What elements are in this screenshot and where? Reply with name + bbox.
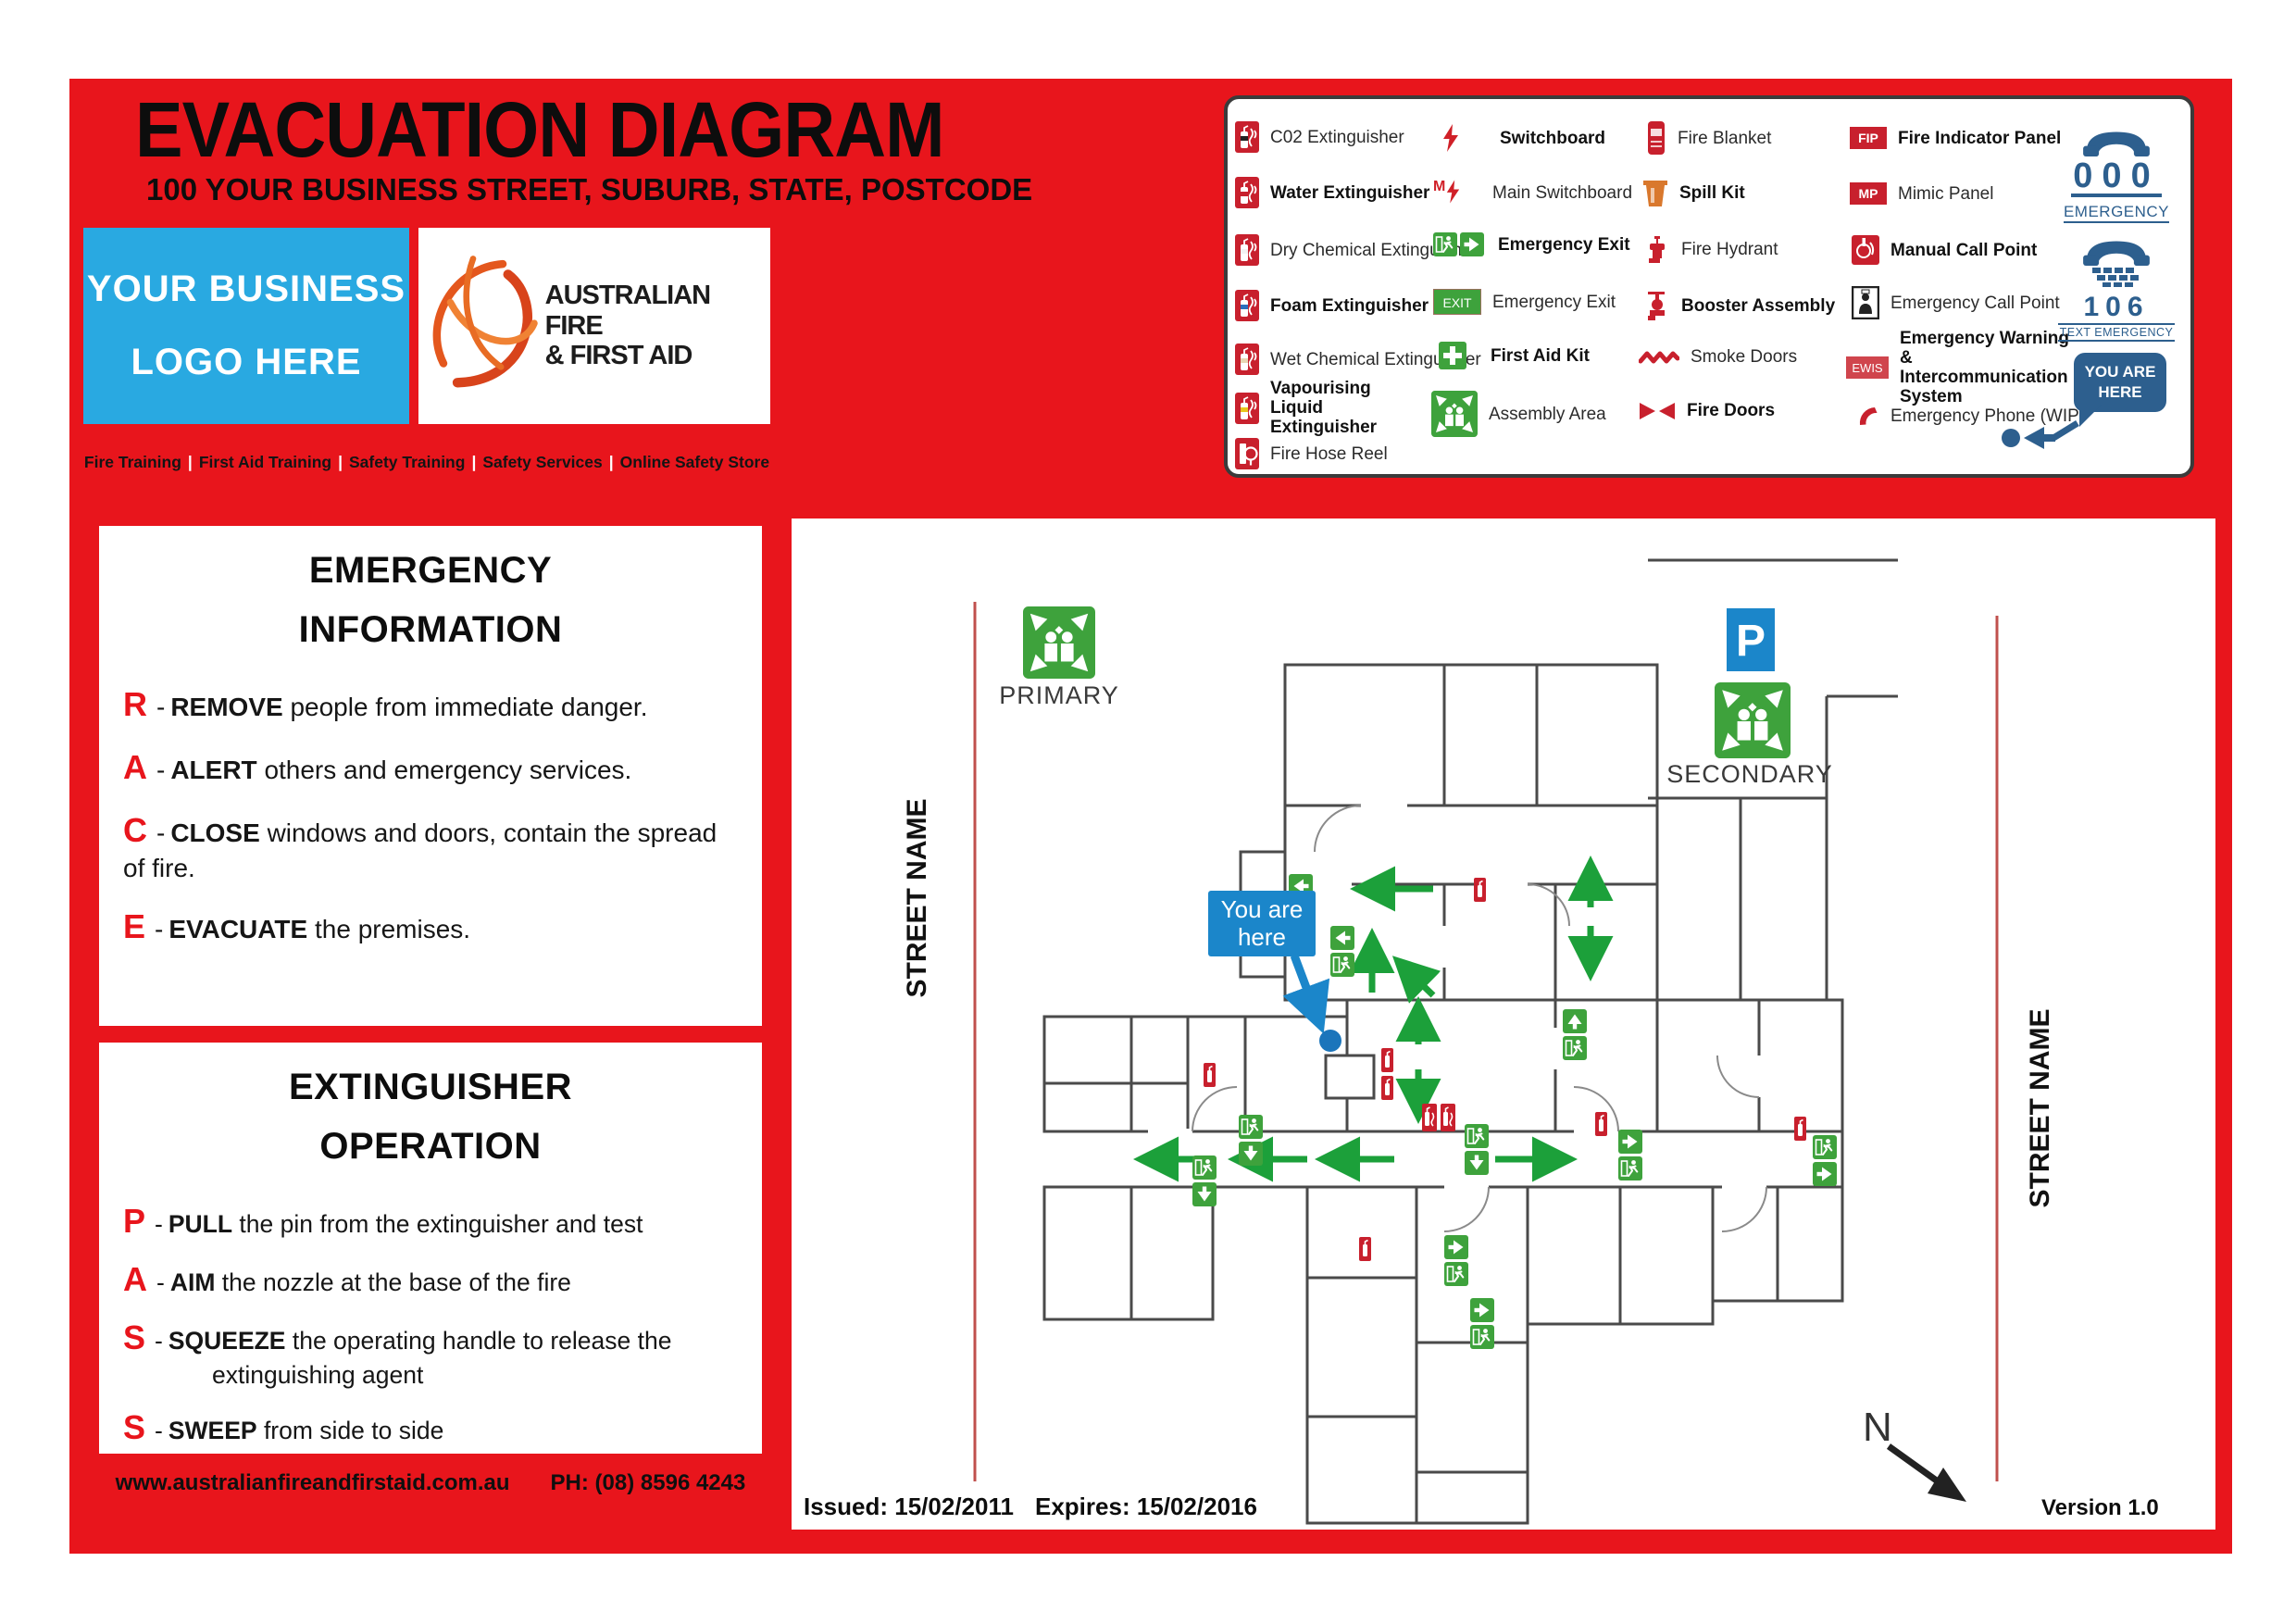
svg-text:P: P [1736,617,1766,666]
emergency-number-label: EMERGENCY [2064,203,2169,223]
race-item-evacuate: E-EVACUATE the premises. [123,906,736,949]
emergency-information-title: EMERGENCY INFORMATION [99,541,762,659]
logo-line2: LOGO HERE [131,342,361,383]
legend-item: Water Extinguisher [1235,177,1429,208]
extinguisher-operation-title: EXTINGUISHER OPERATION [99,1057,762,1176]
legend-item: Fire Hose Reel [1235,438,1388,469]
legend-item: Foam Extinguisher [1235,290,1429,321]
emergency-information-box: EMERGENCY INFORMATION R-REMOVE people fr… [99,526,762,1026]
exit-sign-icon: EXIT [1433,289,1481,315]
version-label: Version 1.0 [2041,1495,2159,1520]
legend-item: First Aid Kit [1439,342,1590,369]
service-item: Safety Services [482,453,602,471]
manual-call-point-icon [1852,235,1879,265]
legend-item: Booster Assembly [1644,290,1835,321]
service-item: Safety Training [349,453,465,471]
text-emergency-label: TEXT EMERGENCY [2058,323,2176,342]
company-brand-box: AUSTRALIAN FIRE & FIRST AID [418,228,770,424]
main-switchboard-icon: M [1433,178,1465,207]
legend-item: Spill Kit [1642,177,1745,208]
services-banner: Fire Training|First Aid Training|Safety … [83,453,770,472]
website: www.australianfireandfirstaid.com.au [116,1470,510,1496]
legend-item: C02 Extinguisher [1235,121,1404,153]
floor-plan: STREET NAME STREET NAME [792,518,2215,1530]
emergency-exit-sign-icon [1433,231,1487,257]
first-aid-kit-icon [1439,342,1466,369]
mimic-panel-icon: MP [1850,182,1887,205]
pass-item-pull: P-PULL the pin from the extinguisher and… [123,1200,736,1243]
pass-item-squeeze: S-SQUEEZE the operating handle to releas… [123,1317,736,1392]
legend-item: Smoke Doors [1639,347,1797,367]
foam-extinguisher-icon [1235,290,1259,321]
assembly-area-icon [1431,391,1478,437]
you-are-here-sign: YOU ARE HERE [2074,353,2166,412]
brand-swirl-icon [428,247,540,405]
svg-text:M: M [1433,179,1445,194]
wet-chemical-extinguisher-icon [1235,344,1259,375]
brand-line1: AUSTRALIAN FIRE [545,281,761,341]
legend-item: Fire Doors [1639,401,1775,420]
switchboard-icon [1442,124,1459,152]
race-item-close: C-CLOSE windows and doors, contain the s… [123,809,736,886]
fire-hose-reel-icon [1235,438,1259,469]
legend-item: Vapourising Liquid Extinguisher [1235,379,1429,437]
business-logo-placeholder: YOUR BUSINESS LOGO HERE [83,228,409,424]
fire-hydrant-icon [1644,234,1670,264]
evacuation-diagram-poster: EVACUATION DIAGRAM 100 YOUR BUSINESS STR… [0,0,2296,1624]
service-item: Online Safety Store [620,453,769,471]
phone-106-icon [2042,234,2190,288]
spill-kit-icon [1642,177,1668,208]
legend-item: Assembly Area [1431,391,1606,437]
svg-text:MP: MP [1859,186,1878,201]
fire-doors-icon [1639,402,1676,420]
svg-text:FIP: FIP [1858,131,1878,145]
brand-line2: & FIRST AID [545,341,761,370]
separator: | [331,453,349,471]
c02-extinguisher-icon [1235,121,1259,153]
fire-blanket-icon [1646,121,1666,155]
ewis-icon: EWIS [1846,356,1889,379]
separator: | [181,453,199,471]
legend-item: Manual Call Point [1852,235,2037,265]
svg-text:SECONDARY: SECONDARY [1666,760,1833,788]
you-are-here-dot [1319,1030,1341,1052]
booster-assembly-icon [1644,290,1670,321]
emergency-numbers: 000 EMERGENCY 106 TEXT EMERGENCY YOU ARE… [2042,99,2190,474]
water-extinguisher-icon [1235,177,1259,208]
you-are-here-pointer-icon [2000,418,2102,455]
svg-text:N: N [1863,1405,1892,1450]
footer-contact: www.australianfireandfirstaid.com.au PH:… [99,1470,762,1496]
phone-number: PH: (08) 8596 4243 [551,1470,746,1496]
service-item: First Aid Training [199,453,331,471]
legend-item: Emergency Call Point [1852,286,2060,319]
phone-000-icon [2042,125,2190,156]
expires-date: Expires: 15/02/2016 [1035,1493,1257,1520]
legend-panel: C02 Extinguisher Water Extinguisher Dry … [1224,95,2194,478]
street-name-right: STREET NAME [2025,1008,2055,1207]
pass-item-sweep: S-SWEEP from side to side [123,1406,736,1450]
dry-chemical-extinguisher-icon [1235,234,1259,266]
smoke-doors-icon [1639,349,1679,366]
legend-item: Fire Hydrant [1644,234,1778,264]
race-item-alert: A-ALERT others and emergency services. [123,746,736,790]
extinguisher-operation-box: EXTINGUISHER OPERATION P-PULL the pin fr… [99,1043,762,1454]
legend-item: Emergency Exit [1433,231,1630,257]
separator: | [603,453,620,471]
svg-text:PRIMARY: PRIMARY [999,681,1119,709]
emergency-phone-icon [1855,403,1879,429]
svg-text:You are: You are [1221,895,1304,923]
legend-item: MP Mimic Panel [1850,182,1993,205]
emergency-call-point-icon [1852,286,1879,319]
logo-line1: YOUR BUSINESS [87,269,406,310]
legend-item: M Main Switchboard [1433,178,1632,207]
separator: | [465,453,482,471]
emergency-number: 000 [2071,158,2161,197]
svg-text:here: here [1238,923,1286,951]
legend-item: FIP Fire Indicator Panel [1850,127,2061,149]
pass-item-aim: A-AIM the nozzle at the base of the fire [123,1258,736,1302]
parking-sign: P [1727,608,1775,671]
brand-name: AUSTRALIAN FIRE & FIRST AID [545,281,761,370]
svg-text:EWIS: EWIS [1852,361,1883,375]
address-line: 100 YOUR BUSINESS STREET, SUBURB, STATE,… [146,172,1032,207]
text-emergency-number: 106 [2083,294,2149,321]
service-item: Fire Training [84,453,181,471]
legend-item: Fire Blanket [1646,121,1771,155]
legend-item: EXIT Emergency Exit [1433,289,1616,315]
fire-indicator-panel-icon: FIP [1850,127,1887,149]
race-item-remove: R-REMOVE people from immediate danger. [123,683,736,727]
street-name-left: STREET NAME [902,798,932,997]
vapourising-liquid-extinguisher-icon [1235,393,1259,424]
svg-text:EXIT: EXIT [1442,295,1472,310]
issued-date: Issued: 15/02/2011 [804,1493,1014,1520]
legend-item: Switchboard [1442,124,1605,152]
page-title: EVACUATION DIAGRAM [135,85,944,175]
